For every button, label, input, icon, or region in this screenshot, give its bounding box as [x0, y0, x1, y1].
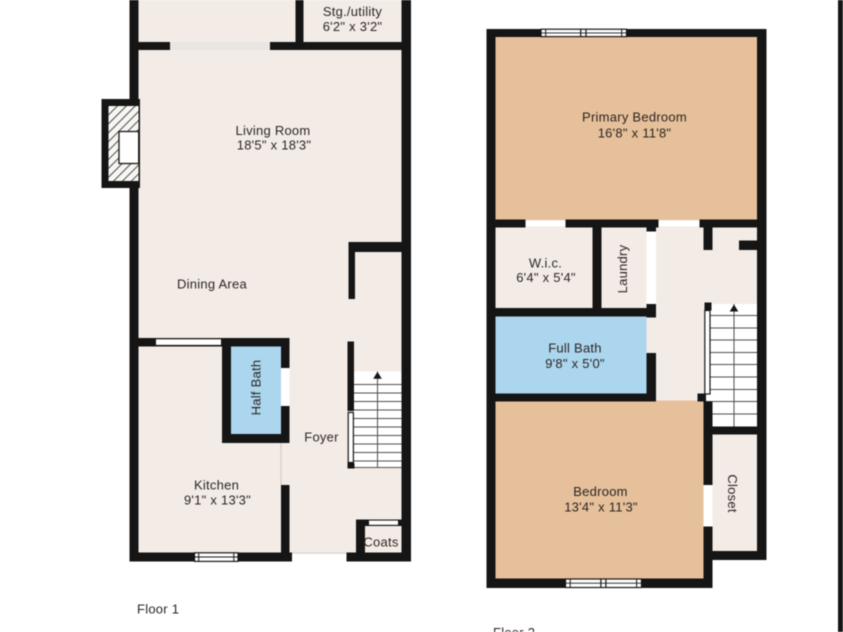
svg-text:Foyer: Foyer: [304, 430, 339, 445]
svg-text:9'8" x 5'0": 9'8" x 5'0": [545, 356, 605, 371]
svg-text:6'2" x 3'2": 6'2" x 3'2": [323, 19, 383, 34]
svg-text:Kitchen: Kitchen: [194, 478, 239, 493]
svg-text:Laundry: Laundry: [615, 244, 630, 293]
svg-text:Dining Area: Dining Area: [177, 276, 247, 291]
svg-text:Bedroom: Bedroom: [573, 484, 628, 499]
svg-text:Primary Bedroom: Primary Bedroom: [582, 110, 687, 125]
svg-text:Floor 1: Floor 1: [137, 602, 179, 617]
svg-text:Living Room: Living Room: [235, 123, 310, 138]
svg-text:Coats: Coats: [363, 535, 398, 550]
svg-text:18'5" x 18'3": 18'5" x 18'3": [237, 138, 312, 153]
svg-text:6'4" x 5'4": 6'4" x 5'4": [516, 270, 576, 285]
svg-text:9'1" x 13'3": 9'1" x 13'3": [184, 493, 251, 508]
svg-text:16'8" x 11'8": 16'8" x 11'8": [598, 125, 672, 140]
svg-text:Stg./utility: Stg./utility: [323, 4, 383, 19]
svg-text:13'4" x 11'3": 13'4" x 11'3": [564, 499, 638, 514]
svg-text:Closet: Closet: [725, 474, 740, 512]
svg-text:Floor 2: Floor 2: [493, 625, 535, 632]
svg-text:Full Bath: Full Bath: [548, 341, 602, 356]
svg-text:Half Bath: Half Bath: [249, 360, 264, 416]
svg-text:W.i.c.: W.i.c.: [529, 256, 562, 271]
